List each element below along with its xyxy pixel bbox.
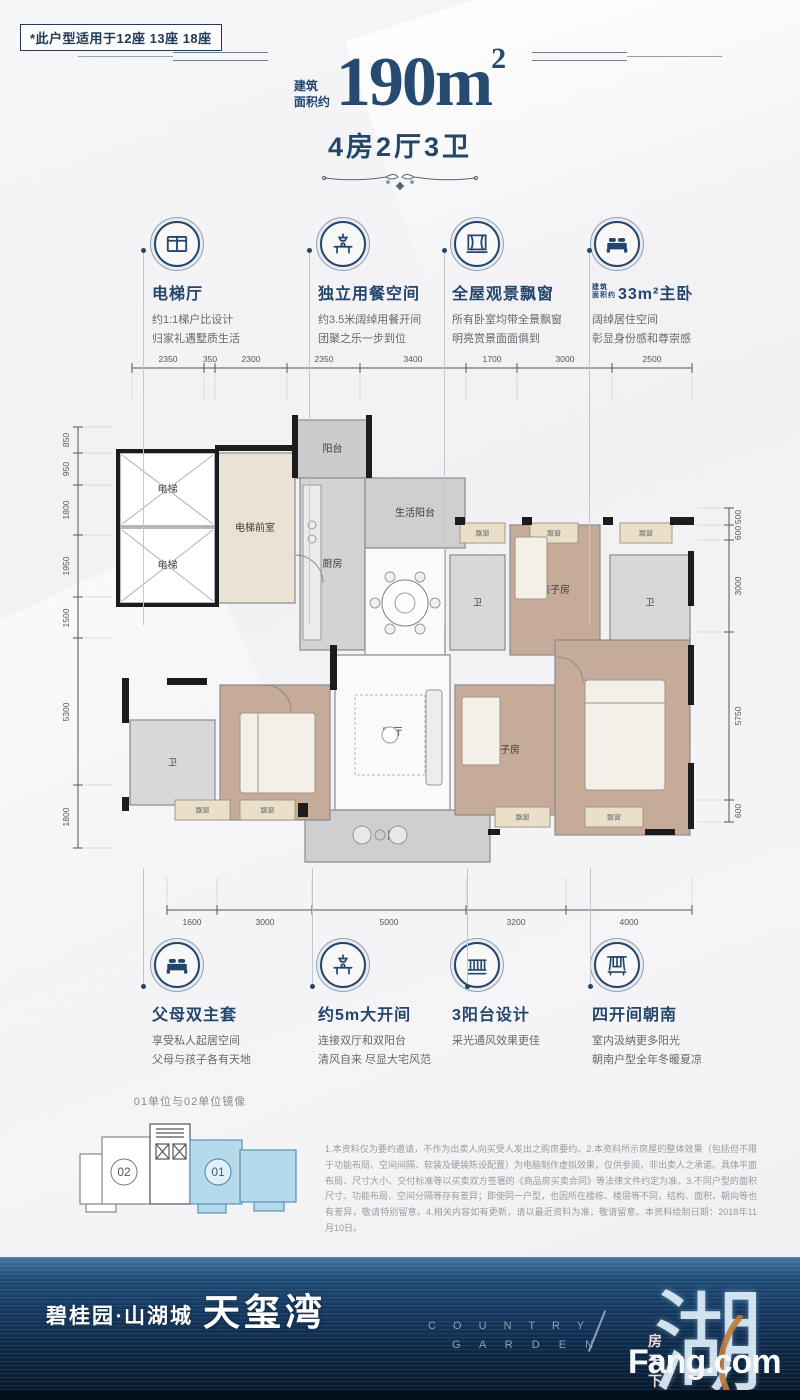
dimension-label: 2350 [315, 354, 334, 364]
dimension-label: 1800 [61, 807, 71, 826]
room: 卫 [450, 555, 505, 650]
window-label: 飘窗 [196, 806, 210, 815]
feature-title: 3阳台设计 [452, 1001, 612, 1025]
dimension-label: 350 [203, 354, 217, 364]
room-label: 厨房 [323, 557, 343, 570]
dimension-label: 5750 [733, 706, 743, 725]
room: 卫 [610, 555, 690, 650]
dimension-label: 1600 [183, 917, 202, 927]
feature-title: 建筑面积约33m²主卧 [592, 280, 752, 304]
window-label: 飘窗 [476, 529, 490, 538]
feature-title-prefix: 建筑面积约 [592, 284, 616, 301]
feature-description: 阔绰居住空间彰显身份感和尊崇感 [592, 311, 752, 350]
dimension-label: 1700 [483, 354, 502, 364]
english-brand: C O U N T R Y G A R D E N [428, 1317, 601, 1354]
area-superscript: 2 [491, 42, 506, 76]
developer-brand: 碧桂园·山湖城 [46, 1300, 193, 1330]
bed-icon [594, 221, 640, 267]
feature-description: 所有卧室均带全景飘窗明亮赏景面面俱到 [452, 311, 612, 350]
feature-connector-line [589, 252, 590, 625]
brand-banner: 碧桂园·山湖城 天玺湾 C O U N T R Y G A R D E N 湖 … [0, 1257, 800, 1400]
area-value: 190m [336, 48, 491, 118]
dimension-label: 600 [733, 804, 743, 818]
bed-icon [154, 942, 200, 988]
room: 卫 [130, 720, 215, 805]
feature-title: 父母双主套 [152, 1001, 312, 1025]
floor-plan: 电梯电梯电梯前室阳台厨房生活阳台餐厅客厅阳台父母房卫卫孩子房卫主人房孩子房 飘窗… [60, 345, 760, 935]
floorplan-poster: { "badge": { "text": "*此户型适用于12座 13座 18座… [0, 0, 800, 1400]
keyplan-diagram: 02 01 [72, 1112, 307, 1227]
keyplan-title: 01单位与02单位镜像 [70, 1093, 310, 1109]
window-label: 飘窗 [607, 813, 621, 822]
flourish-divider [320, 168, 480, 194]
feature-connector-line [309, 252, 310, 625]
feature-connector-dot [310, 984, 315, 989]
room-label: 电梯前室 [235, 521, 275, 534]
dining-icon [320, 942, 366, 988]
dimension-label: 500 [733, 510, 743, 524]
window-label: 飘窗 [516, 813, 530, 822]
dimension-label: 2350 [159, 354, 178, 364]
feature-connector-dot [588, 984, 593, 989]
feature-title: 四开间朝南 [592, 1001, 752, 1025]
dimension-label: 3200 [507, 917, 526, 927]
room-label: 卫 [645, 598, 654, 608]
dimension-label: 1800 [61, 500, 71, 519]
dimension-label: 1500 [61, 608, 71, 627]
feature-description: 约1:1梯户比设计归家礼遇墅质生活 [152, 311, 312, 350]
dining-icon [320, 221, 366, 267]
feature-description: 室内汲纳更多阳光朝南户型全年冬暖夏凉 [592, 1032, 752, 1071]
room-label: 卫 [473, 598, 482, 608]
feature-title: 全屋观景飘窗 [452, 280, 612, 304]
features-bottom-row: 父母双主套享受私人起居空间父母与孩子各有天地约5m大开间连接双厅和双阳台清风自来… [0, 942, 800, 1082]
room: 电梯前室 [215, 453, 295, 603]
layout-subtitle: 4房2厅3卫 [0, 125, 800, 164]
feature-description: 享受私人起居空间父母与孩子各有天地 [152, 1032, 312, 1071]
bay-window: 飘窗 [175, 800, 230, 820]
applicable-buildings-badge: *此户型适用于12座 13座 18座 [20, 24, 222, 51]
dimension-label: 3000 [733, 576, 743, 595]
feature-connector-line [143, 252, 144, 625]
area-prefix: 建筑 面积约 [294, 78, 330, 110]
dimension-label: 600 [733, 526, 743, 540]
unit-01-label: 01 [211, 1165, 225, 1179]
project-name: 天玺湾 [203, 1297, 326, 1330]
area-title: 建筑 面积约 190m 2 [0, 48, 800, 118]
bay-window: 飘窗 [620, 523, 672, 543]
dimension-label: 4000 [620, 917, 639, 927]
bay-window: 飘窗 [585, 807, 643, 827]
dimension-label: 2500 [643, 354, 662, 364]
feature-connector-line [467, 868, 468, 986]
feature-connector-line [312, 868, 313, 986]
feature-connector-dot [307, 248, 312, 253]
legal-disclaimer: 1.本资料仅为要约邀请，不作为出卖人向买受人发出之购房要约。2.本资料所示房屋的… [325, 1142, 757, 1237]
bay-window: 飘窗 [460, 523, 505, 543]
room-label: 阳台 [323, 442, 343, 455]
room: 阳台 [295, 420, 370, 478]
dimension-label: 3400 [404, 354, 423, 364]
dimension-label: 5300 [61, 702, 71, 721]
dimension-label: 2300 [242, 354, 261, 364]
balcony-icon [454, 942, 500, 988]
window-label: 飘窗 [261, 806, 275, 815]
bay-window: 飘窗 [495, 807, 550, 827]
dimension-label: 3000 [256, 917, 275, 927]
window-label: 飘窗 [639, 529, 653, 538]
room: 生活阳台 [365, 478, 465, 548]
feature-item: 全屋观景飘窗所有卧室均带全景飘窗明亮赏景面面俱到 [452, 221, 612, 350]
room-label: 卫 [168, 758, 177, 768]
features-top-row: 电梯厅约1:1梯户比设计归家礼遇墅质生活独立用餐空间约3.5米阔绰用餐开间团聚之… [0, 221, 800, 361]
feature-item: 建筑面积约33m²主卧阔绰居住空间彰显身份感和尊崇感 [592, 221, 752, 350]
feature-connector-line [444, 252, 445, 625]
feature-item: 3阳台设计采光通风效果更佳 [452, 942, 612, 1051]
dimension-label: 5000 [380, 917, 399, 927]
dimension-label: 1950 [61, 556, 71, 575]
feature-connector-dot [141, 248, 146, 253]
feature-item: 电梯厅约1:1梯户比设计归家礼遇墅质生活 [152, 221, 312, 350]
dimension-label: 850 [61, 433, 71, 447]
elevator-icon [154, 221, 200, 267]
feature-connector-dot [141, 984, 146, 989]
feature-title: 电梯厅 [152, 280, 312, 304]
feature-description: 采光通风效果更佳 [452, 1032, 612, 1051]
room-label: 生活阳台 [395, 506, 435, 519]
feature-connector-dot [465, 984, 470, 989]
dimension-label: 3000 [556, 354, 575, 364]
dimension-label: 950 [61, 462, 71, 476]
unit-02-label: 02 [117, 1165, 131, 1179]
south-window-icon [594, 942, 640, 988]
feature-item: 父母双主套享受私人起居空间父母与孩子各有天地 [152, 942, 312, 1071]
baywindow-icon [454, 221, 500, 267]
feature-connector-dot [442, 248, 447, 253]
fang-logo: Fang.com [628, 1343, 781, 1382]
bay-window: 飘窗 [240, 800, 295, 820]
feature-connector-line [143, 868, 144, 986]
feature-connector-line [590, 868, 591, 986]
window-label: 飘窗 [547, 529, 561, 538]
feature-item: 四开间朝南室内汲纳更多阳光朝南户型全年冬暖夏凉 [592, 942, 752, 1071]
feature-connector-dot [587, 248, 592, 253]
